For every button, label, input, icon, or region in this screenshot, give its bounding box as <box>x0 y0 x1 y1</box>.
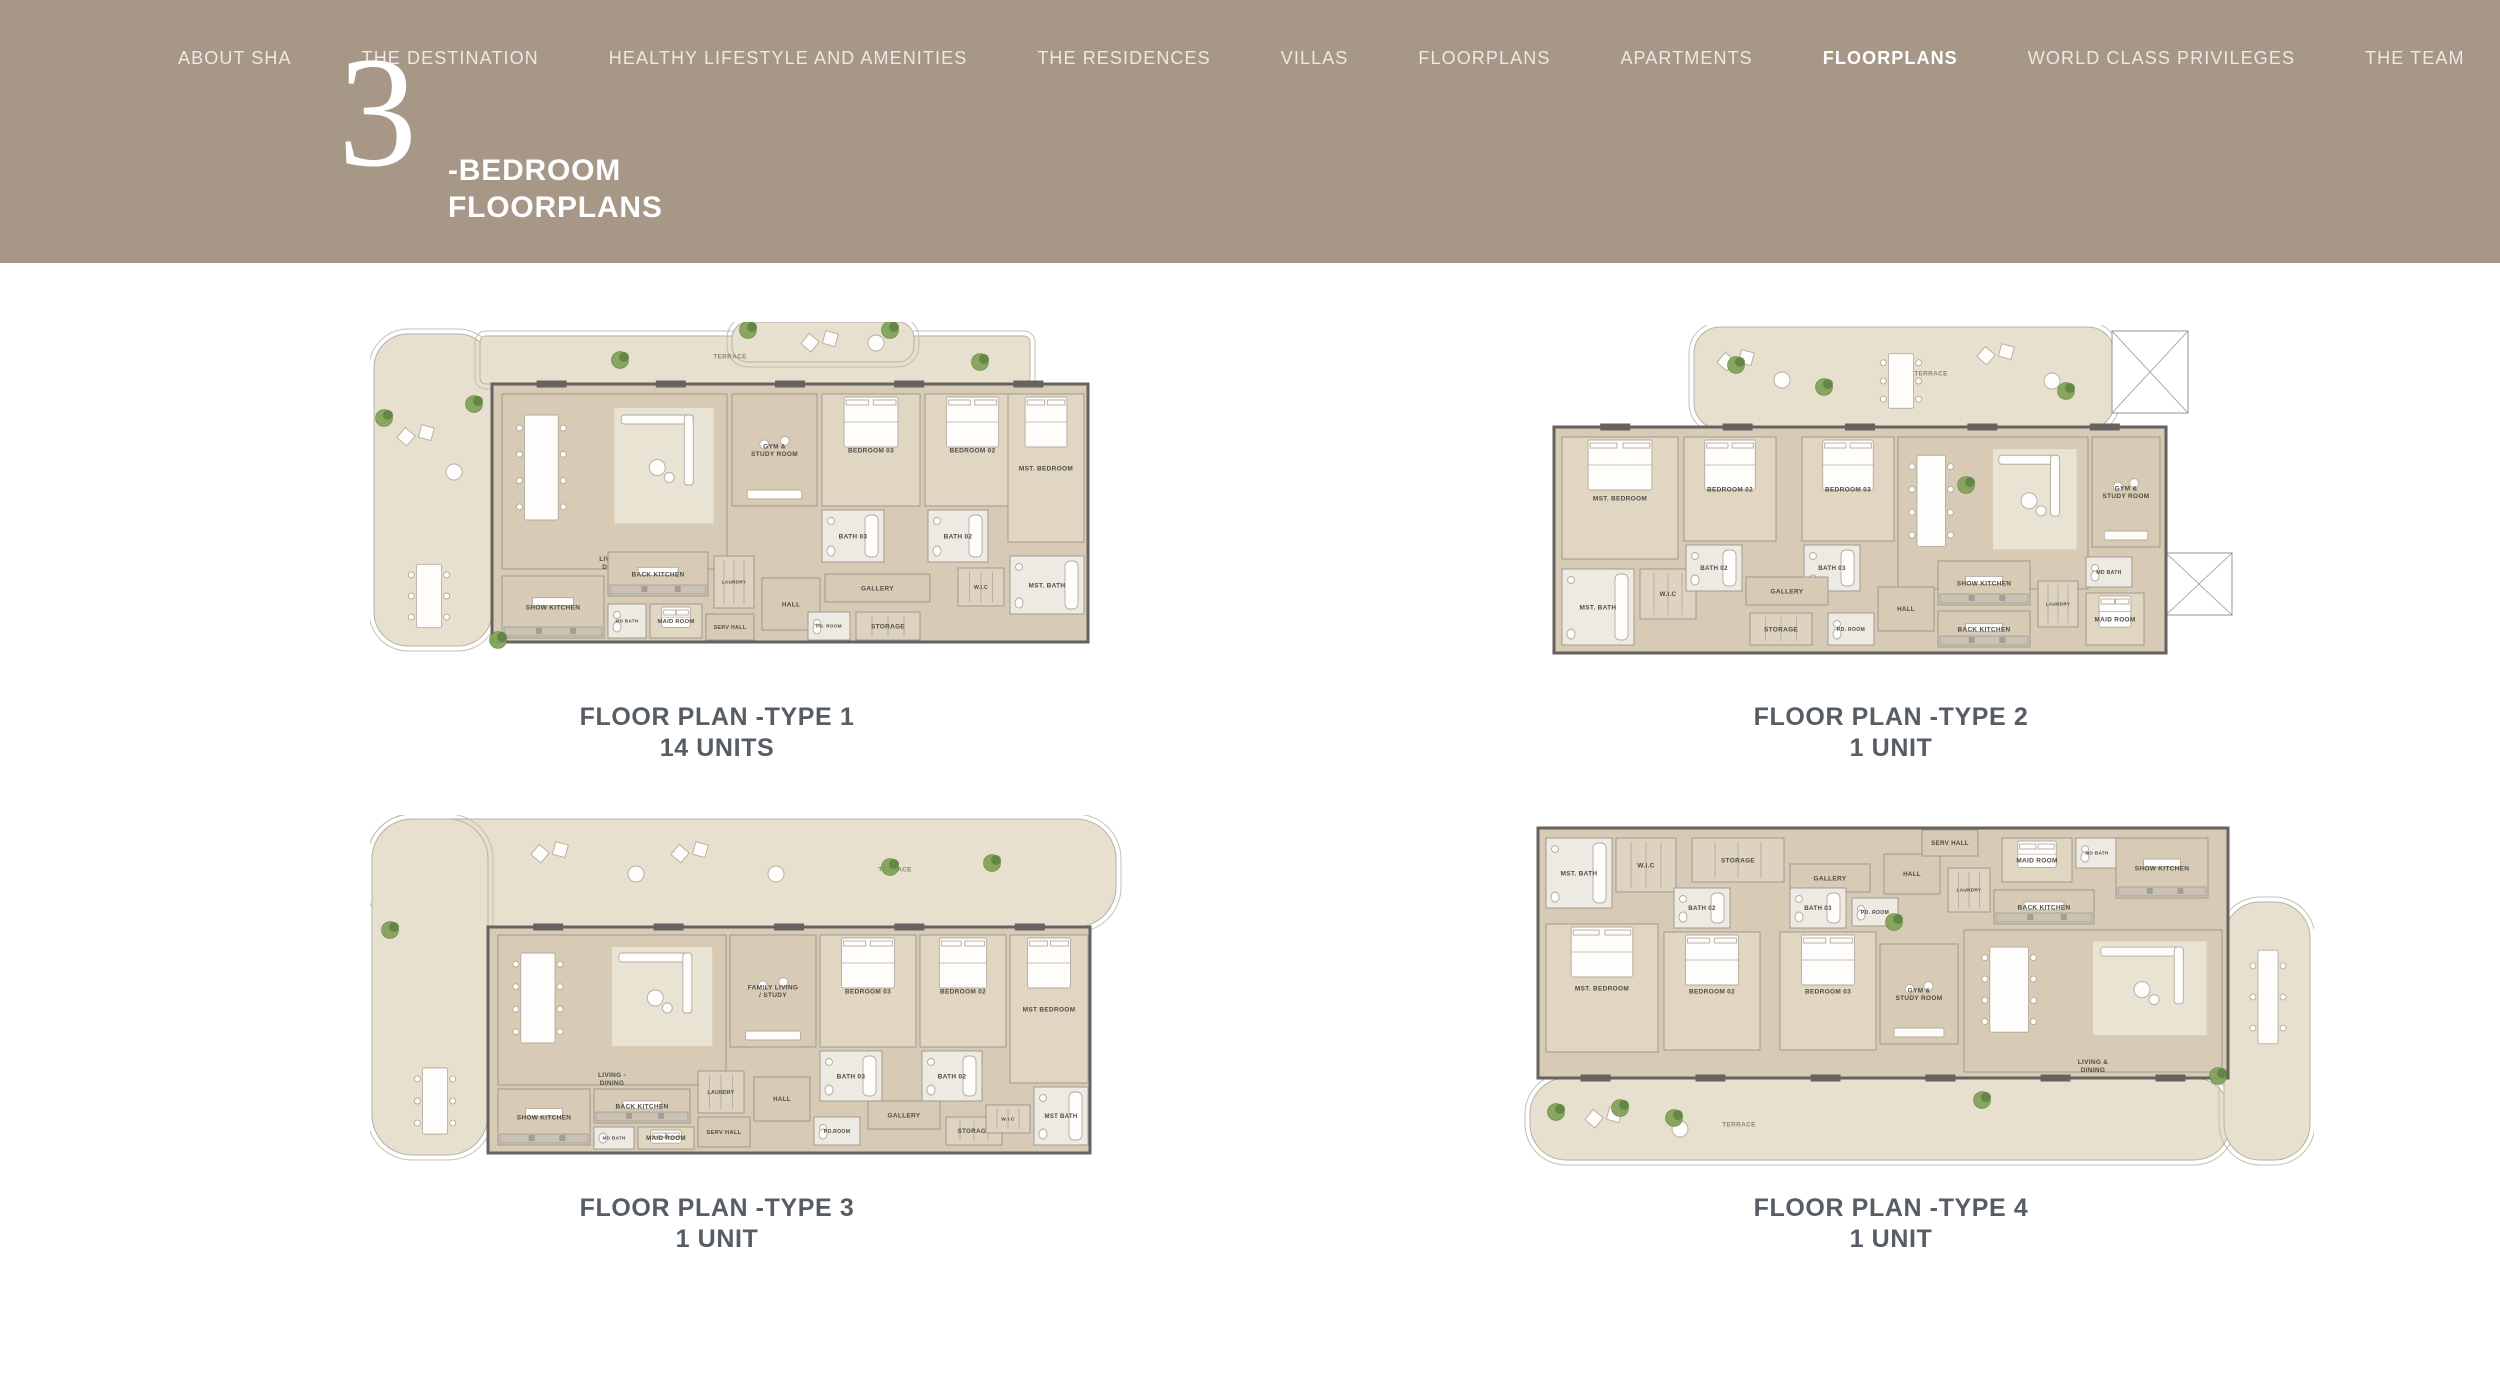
window-marker <box>775 381 805 388</box>
floorplan-units: 1 UNIT <box>580 1224 855 1255</box>
floorplan-type-4-image: MST. BATHW.I.CSTORAGEGALLERYMST. BEDROOM… <box>1496 812 2286 1167</box>
room-label: BEDROOM 02 <box>1707 486 1753 493</box>
floorplan-type-1-drawing: LIVING &DININGGYM &STUDY ROOMBEDROOM 03B… <box>370 322 1160 662</box>
room-label: BACK KITCHEN <box>615 1103 668 1110</box>
room-label: GALLERY <box>1771 588 1804 595</box>
terrace <box>1530 1078 2230 1160</box>
room-label: BATH 03 <box>1804 905 1832 912</box>
window-marker <box>1926 1075 1956 1082</box>
nav-item-the-residences[interactable]: THE RESIDENCES <box>1037 48 1210 69</box>
floorplan-units: 1 UNIT <box>1754 1224 2029 1255</box>
room-label: MST. BATH <box>1580 604 1617 611</box>
room-label: W.I.C <box>1001 1116 1015 1122</box>
room-label: SHOW KITCHEN <box>1957 580 2012 587</box>
floorplan-card-type-2: MST. BEDROOMBEDROOM 02BEDROOM 03LIVING &… <box>1486 322 2296 764</box>
room-label: MAID ROOM <box>2095 616 2136 623</box>
nav-item-villas[interactable]: VILLAS <box>1281 48 1349 69</box>
room-label: BEDROOM 02 <box>940 988 986 995</box>
room-label: MD BATH <box>616 619 639 624</box>
room-label: MAID ROOM <box>2016 857 2057 864</box>
floorplan-card-type-1: LIVING &DININGGYM &STUDY ROOMBEDROOM 03B… <box>312 322 1122 764</box>
room-label: PD.ROOM <box>824 1128 851 1134</box>
room-label: STORAGE <box>1764 626 1798 633</box>
nav-item-healthy-lifestyle-and-amenities[interactable]: HEALTHY LIFESTYLE AND AMENITIES <box>609 48 968 69</box>
page-title: -BEDROOM FLOORPLANS <box>448 152 663 226</box>
window-marker <box>533 923 563 930</box>
window-marker <box>774 923 804 930</box>
floorplan-type-4-drawing: MST. BATHW.I.CSTORAGEGALLERYMST. BEDROOM… <box>1524 812 2314 1167</box>
window-marker <box>1967 423 1997 430</box>
room-label: MST BATH <box>1045 1114 1078 1120</box>
room-label: MST. BEDROOM <box>1019 465 1073 472</box>
room-label: PD. ROOM <box>1861 910 1889 916</box>
floorplan-card-type-4: MST. BATHW.I.CSTORAGEGALLERYMST. BEDROOM… <box>1486 812 2296 1255</box>
window-marker <box>2090 423 2120 430</box>
room-label: SERV HALL <box>714 625 747 631</box>
room-label: GALLERY <box>888 1112 921 1119</box>
room-label: LAUNDRY <box>1957 888 1982 893</box>
room-label: MST. BEDROOM <box>1593 495 1647 502</box>
room-label: SERV HALL <box>1931 840 1969 847</box>
window-marker <box>537 381 567 388</box>
room-label: MST BEDROOM <box>1023 1006 1076 1013</box>
room-label: MAID ROOM <box>646 1135 686 1142</box>
title-line-bedroom: -BEDROOM <box>448 152 663 189</box>
room-label: TERRACE <box>1914 370 1948 377</box>
room-label: GALLERY <box>1814 875 1847 882</box>
room-label: BACK KITCHEN <box>631 571 684 578</box>
title-numeral: 3 <box>338 34 417 192</box>
room-label: LAUNDRY <box>708 1089 735 1095</box>
title-line-floorplans: FLOORPLANS <box>448 189 663 226</box>
room-label: STORAGE <box>871 623 905 630</box>
room-label: BATH 02 <box>1688 905 1716 912</box>
floorplan-caption: FLOOR PLAN -TYPE 4 1 UNIT <box>1754 1193 2029 1255</box>
window-marker <box>1581 1075 1611 1082</box>
room-label: STORAGE <box>1721 857 1755 864</box>
window-marker <box>1811 1075 1841 1082</box>
room-label: TERRACE <box>1722 1121 1756 1128</box>
room-label: HALL <box>773 1096 791 1103</box>
room-label: BEDROOM 03 <box>1805 988 1851 995</box>
room-label: GALLERY <box>861 585 894 592</box>
room-label: BATH 03 <box>1818 565 1846 572</box>
floorplan-caption: FLOOR PLAN -TYPE 2 1 UNIT <box>1754 702 2029 764</box>
window-marker <box>656 381 686 388</box>
room-label: BACK KITCHEN <box>2017 904 2070 911</box>
room-label: MD BATH <box>603 1135 626 1140</box>
floorplan-units: 14 UNITS <box>580 733 855 764</box>
room-label: MAID ROOM <box>658 619 695 625</box>
window-marker <box>1723 423 1753 430</box>
nav-item-the-team[interactable]: THE TEAM <box>2365 48 2464 69</box>
site-header: ABOUT SHA THE DESTINATION HEALTHY LIFEST… <box>0 0 2500 263</box>
window-marker <box>2041 1075 2071 1082</box>
floorplan-type-1-image: LIVING &DININGGYM &STUDY ROOMBEDROOM 03B… <box>322 322 1112 662</box>
room-label: SHOW KITCHEN <box>517 1114 572 1121</box>
room-label: PD. ROOM <box>816 624 842 629</box>
room-label: BEDROOM 02 <box>950 447 996 454</box>
room-label: HALL <box>1897 606 1915 613</box>
floorplan-title: FLOOR PLAN -TYPE 1 <box>580 702 855 733</box>
floorplan-card-type-3: LIVING -DININGFAMILY LIVING/ STUDYBEDROO… <box>312 812 1122 1255</box>
room-label: MD BATH <box>2085 851 2109 856</box>
floorplan-type-2-drawing: MST. BEDROOMBEDROOM 02BEDROOM 03LIVING &… <box>1546 325 2236 660</box>
floorplan-type-3-image: LIVING -DININGFAMILY LIVING/ STUDYBEDROO… <box>332 812 1102 1167</box>
nav-item-apartments[interactable]: APARTMENTS <box>1620 48 1752 69</box>
room-label: BEDROOM 03 <box>1825 486 1871 493</box>
window-marker <box>1845 423 1875 430</box>
floorplan-title: FLOOR PLAN -TYPE 2 <box>1754 702 2029 733</box>
floorplan-title: FLOOR PLAN -TYPE 4 <box>1754 1193 2029 1224</box>
room-label: SHOW KITCHEN <box>2135 865 2190 872</box>
room-label: HALL <box>1903 871 1921 878</box>
nav-item-floorplans-2[interactable]: FLOORPLANS <box>1823 48 1958 69</box>
room-label: MST. BEDROOM <box>1575 985 1629 992</box>
room-label: BEDROOM 03 <box>848 447 894 454</box>
room-label: LIVING -DINING <box>598 1072 626 1087</box>
room-label: W.I.C <box>1660 591 1677 598</box>
room-label: MST. BATH <box>1561 870 1598 877</box>
floorplan-units: 1 UNIT <box>1754 733 2029 764</box>
room-label: BATH 02 <box>938 1073 967 1080</box>
floorplan-title: FLOOR PLAN -TYPE 3 <box>580 1193 855 1224</box>
room-label: LIVING &DINING <box>2078 1059 2109 1074</box>
room-label: PD. ROOM <box>1837 626 1865 632</box>
nav-item-floorplans-1[interactable]: FLOORPLANS <box>1418 48 1550 69</box>
window-marker <box>1600 423 1630 430</box>
room-label: W.I.C <box>1637 862 1654 869</box>
nav-item-world-class-privileges[interactable]: WORLD CLASS PRIVILEGES <box>2028 48 2295 69</box>
room-label: STORAGE <box>958 1128 991 1135</box>
window-marker <box>1015 923 1045 930</box>
room-label: MST. BATH <box>1029 582 1066 589</box>
window-marker <box>894 381 924 388</box>
nav-item-about-sha[interactable]: ABOUT SHA <box>178 48 292 69</box>
floorplan-type-2-image: MST. BEDROOMBEDROOM 02BEDROOM 03LIVING &… <box>1546 322 2236 662</box>
room-label: SHOW KITCHEN <box>526 604 581 611</box>
room-label: BEDROOM 02 <box>1689 988 1735 995</box>
room-label: HALL <box>782 601 800 608</box>
room-label: TERRACE <box>713 353 747 360</box>
window-marker <box>1696 1075 1726 1082</box>
room-label: BATH 02 <box>944 533 973 540</box>
window-marker <box>1013 381 1043 388</box>
room-label: LAUNDRY <box>722 580 746 585</box>
room-label: SERV HALL <box>706 1130 741 1136</box>
room-label: BATH 03 <box>837 1073 866 1080</box>
floorplan-caption: FLOOR PLAN -TYPE 1 14 UNITS <box>580 702 855 764</box>
room-label: BEDROOM 03 <box>845 988 891 995</box>
room-label: BATH 03 <box>839 533 868 540</box>
floorplan-caption: FLOOR PLAN -TYPE 3 1 UNIT <box>580 1193 855 1255</box>
room-label: MD BATH <box>2096 569 2121 575</box>
window-marker <box>894 923 924 930</box>
floorplan-type-3-drawing: LIVING -DININGFAMILY LIVING/ STUDYBEDROO… <box>370 815 1140 1165</box>
room-label: LAUNDRY <box>2046 601 2070 606</box>
window-marker <box>654 923 684 930</box>
main-nav: ABOUT SHA THE DESTINATION HEALTHY LIFEST… <box>178 48 2465 69</box>
window-marker <box>2156 1075 2186 1082</box>
room-label: BACK KITCHEN <box>1957 626 2010 633</box>
room-label: W.I.C <box>974 585 988 591</box>
room-label: BATH 02 <box>1700 565 1728 572</box>
